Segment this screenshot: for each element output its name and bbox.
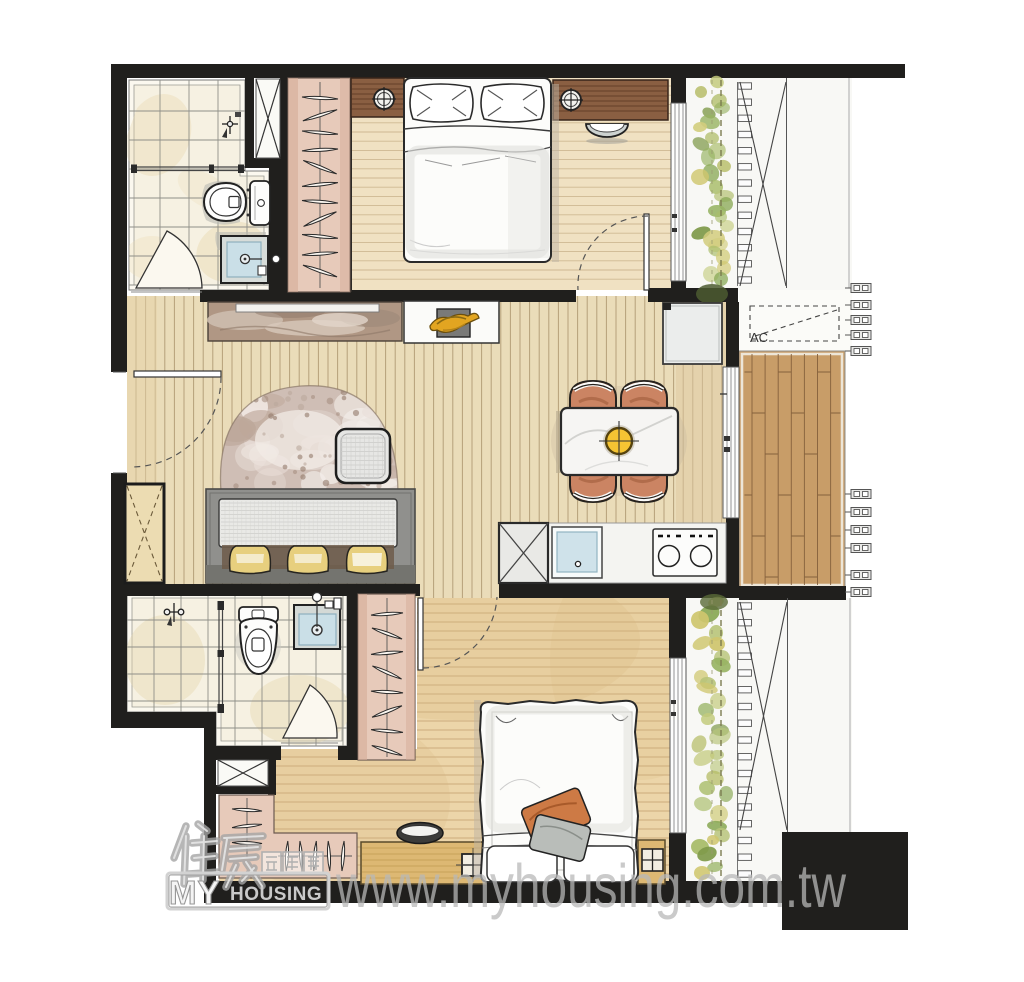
svg-text:www.myhousing.com.tw: www.myhousing.com.tw bbox=[335, 852, 847, 920]
svg-text:MY: MY bbox=[169, 874, 221, 911]
svg-text:AC: AC bbox=[750, 330, 768, 345]
svg-text:HOUSING: HOUSING bbox=[230, 884, 322, 905]
